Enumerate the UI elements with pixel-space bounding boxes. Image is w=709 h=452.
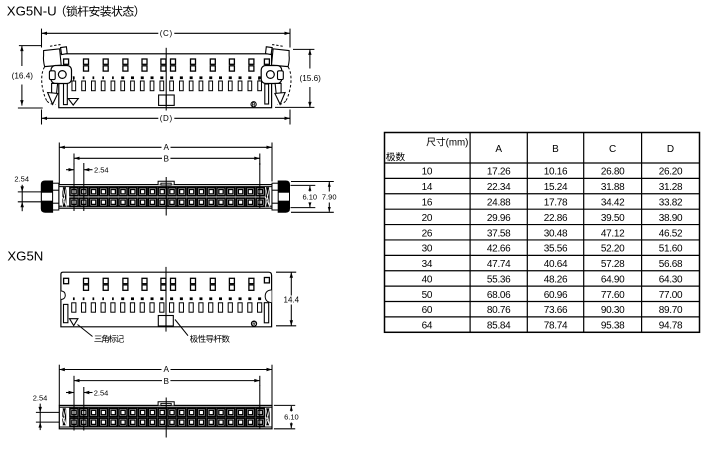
svg-text:C: C: [609, 144, 616, 155]
svg-text:(16.4): (16.4): [12, 71, 34, 80]
svg-text:20: 20: [422, 213, 433, 224]
svg-text:34: 34: [422, 259, 433, 270]
svg-text:2.54: 2.54: [94, 165, 109, 174]
svg-text:42.66: 42.66: [487, 244, 511, 255]
svg-text:47.74: 47.74: [487, 259, 511, 270]
svg-text:77.00: 77.00: [659, 290, 683, 301]
svg-text:30.48: 30.48: [544, 228, 568, 239]
svg-text:A: A: [495, 144, 502, 155]
svg-text:24.88: 24.88: [487, 197, 511, 208]
svg-text:80.76: 80.76: [487, 305, 511, 316]
svg-text:B: B: [552, 144, 559, 155]
svg-text:14: 14: [422, 182, 433, 193]
svg-text:95.38: 95.38: [601, 321, 625, 332]
svg-text:22.86: 22.86: [544, 213, 568, 224]
svg-text:D: D: [667, 144, 674, 155]
svg-text:14.4: 14.4: [284, 296, 300, 305]
svg-text:26.80: 26.80: [601, 167, 625, 178]
svg-text:A: A: [163, 143, 169, 152]
svg-text:(C): (C): [160, 29, 173, 38]
svg-text:78.74: 78.74: [544, 321, 568, 332]
svg-text:64.30: 64.30: [659, 274, 683, 285]
svg-text:6.10: 6.10: [284, 413, 299, 422]
svg-text:38.90: 38.90: [659, 213, 683, 224]
svg-text:40.64: 40.64: [544, 259, 568, 270]
svg-text:73.66: 73.66: [544, 305, 568, 316]
svg-text:51.60: 51.60: [659, 244, 683, 255]
svg-text:46.52: 46.52: [659, 228, 683, 239]
svg-text:7.90: 7.90: [322, 192, 337, 201]
svg-text:A: A: [163, 365, 169, 374]
svg-text:64: 64: [422, 321, 433, 332]
svg-text:40: 40: [422, 274, 433, 285]
svg-text:26.20: 26.20: [659, 167, 683, 178]
svg-text:22.34: 22.34: [487, 182, 511, 193]
svg-text:2.54: 2.54: [14, 175, 29, 184]
svg-text:(D): (D): [160, 114, 173, 123]
svg-text:64.90: 64.90: [601, 274, 625, 285]
svg-text:29.96: 29.96: [487, 213, 511, 224]
svg-text:B: B: [163, 377, 169, 386]
svg-text:2.54: 2.54: [94, 389, 109, 398]
svg-text:(mm): (mm): [446, 137, 469, 148]
svg-text:31.88: 31.88: [601, 182, 625, 193]
svg-text:39.50: 39.50: [601, 213, 625, 224]
svg-text:R: R: [252, 322, 256, 328]
svg-text:6.10: 6.10: [302, 192, 317, 201]
svg-text:15.24: 15.24: [544, 182, 568, 193]
svg-text:85.84: 85.84: [487, 321, 511, 332]
svg-text:37.58: 37.58: [487, 228, 511, 239]
svg-text:50: 50: [422, 290, 433, 301]
svg-text:47.12: 47.12: [601, 228, 625, 239]
svg-text:26: 26: [422, 228, 433, 239]
svg-text:35.56: 35.56: [544, 244, 568, 255]
svg-text:48.26: 48.26: [544, 274, 568, 285]
svg-text:2.54: 2.54: [33, 394, 48, 403]
svg-text:56.68: 56.68: [659, 259, 683, 270]
svg-text:R: R: [252, 102, 256, 108]
svg-text:33.82: 33.82: [659, 197, 683, 208]
svg-text:17.78: 17.78: [544, 197, 568, 208]
svg-text:55.36: 55.36: [487, 274, 511, 285]
svg-text:16: 16: [422, 197, 433, 208]
svg-text:XG5N: XG5N: [7, 248, 43, 263]
svg-text:10: 10: [422, 167, 433, 178]
svg-text:B: B: [163, 155, 169, 164]
svg-text:10.16: 10.16: [544, 167, 568, 178]
svg-text:52.20: 52.20: [601, 244, 625, 255]
svg-text:30: 30: [422, 244, 433, 255]
svg-text:60.96: 60.96: [544, 290, 568, 301]
svg-text:94.78: 94.78: [659, 321, 683, 332]
svg-text:77.60: 77.60: [601, 290, 625, 301]
svg-text:57.28: 57.28: [601, 259, 625, 270]
svg-text:(15.6): (15.6): [300, 74, 322, 83]
svg-text:31.28: 31.28: [659, 182, 683, 193]
svg-text:89.70: 89.70: [659, 305, 683, 316]
svg-text:60: 60: [422, 305, 433, 316]
svg-text:68.06: 68.06: [487, 290, 511, 301]
svg-text:XG5N-U: XG5N-U: [7, 4, 57, 19]
svg-text:17.26: 17.26: [487, 167, 511, 178]
svg-text:90.30: 90.30: [601, 305, 625, 316]
svg-text:34.42: 34.42: [601, 197, 625, 208]
